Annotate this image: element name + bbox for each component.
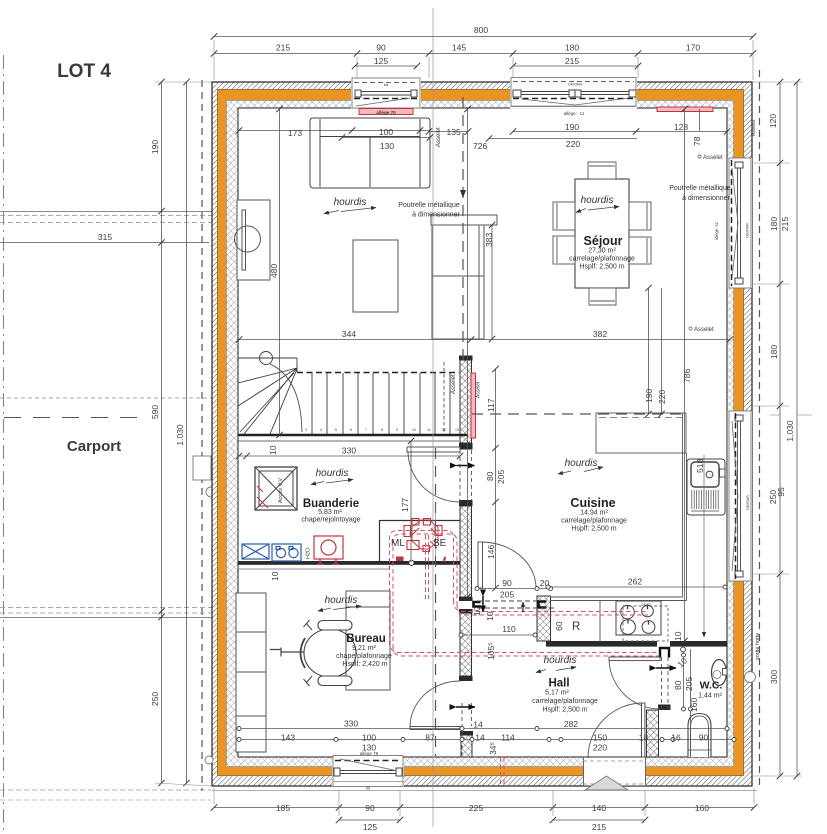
- svg-text:160: 160: [695, 803, 709, 813]
- svg-text:7: 7: [365, 428, 367, 432]
- svg-text:262: 262: [628, 577, 642, 587]
- svg-text:80: 80: [673, 680, 683, 690]
- svg-text:100: 100: [362, 733, 376, 743]
- svg-text:150: 150: [593, 733, 607, 743]
- svg-text:220: 220: [657, 390, 667, 404]
- svg-text:3: 3: [305, 428, 307, 432]
- svg-text:16: 16: [671, 733, 681, 743]
- svg-text:H2O: H2O: [306, 547, 312, 559]
- svg-text:34⁵: 34⁵: [488, 742, 498, 755]
- svg-text:à dimensionner: à dimensionner: [412, 212, 461, 219]
- svg-text:128: 128: [674, 122, 688, 132]
- svg-text:170: 170: [686, 43, 700, 53]
- svg-text:9: 9: [396, 428, 398, 432]
- svg-text:220: 220: [566, 139, 580, 149]
- svg-text:90: 90: [376, 43, 386, 53]
- svg-text:27,30 m²: 27,30 m²: [588, 248, 616, 255]
- svg-text:14,94 m²: 14,94 m²: [580, 510, 608, 517]
- svg-text:Asselet: Asselet: [751, 119, 757, 136]
- svg-text:carrelage/plafonnage: carrelage/plafonnage: [532, 698, 598, 705]
- svg-text:215: 215: [565, 56, 579, 66]
- svg-text:90: 90: [502, 578, 512, 588]
- svg-text:9,21 m²: 9,21 m²: [352, 645, 376, 652]
- svg-text:Carport: Carport: [67, 438, 121, 455]
- svg-text:160: 160: [689, 698, 699, 712]
- svg-text:Hsplf: 2,500 m: Hsplf: 2,500 m: [542, 707, 587, 714]
- svg-text:330: 330: [342, 446, 356, 456]
- svg-text:114: 114: [501, 733, 515, 743]
- svg-text:SE: SE: [433, 538, 447, 549]
- svg-text:hourdis: hourdis: [565, 458, 598, 469]
- svg-text:6: 6: [350, 428, 352, 432]
- svg-text:Séjour: Séjour: [584, 234, 623, 248]
- svg-text:518: 518: [695, 459, 705, 473]
- svg-text:120: 120: [768, 114, 778, 128]
- svg-text:315: 315: [98, 232, 112, 242]
- svg-text:143: 143: [281, 733, 295, 743]
- svg-text:800: 800: [474, 25, 488, 35]
- svg-text:06: 06: [366, 786, 371, 791]
- svg-text:180: 180: [769, 217, 779, 231]
- svg-text:480: 480: [269, 264, 279, 278]
- svg-text:90: 90: [699, 733, 709, 743]
- svg-text:Asselet: Asselet: [694, 327, 714, 333]
- svg-text:hourdis: hourdis: [325, 595, 358, 606]
- svg-text:13: 13: [455, 428, 459, 432]
- svg-text:Asselet: Asselet: [703, 155, 723, 161]
- svg-text:117: 117: [486, 398, 496, 412]
- svg-text:sortie hotte: sortie hotte: [755, 633, 761, 660]
- svg-text:hourdis: hourdis: [334, 197, 367, 208]
- svg-text:180: 180: [565, 43, 579, 53]
- svg-text:Hsplf: 2,500 m: Hsplf: 2,500 m: [571, 526, 616, 533]
- svg-text:Asselet: Asselet: [476, 381, 482, 398]
- svg-text:W.C.: W.C.: [700, 680, 723, 692]
- svg-text:OB/OkR: OB/OkR: [745, 495, 750, 510]
- svg-text:4: 4: [320, 428, 322, 432]
- svg-text:282: 282: [564, 719, 578, 729]
- svg-text:205: 205: [684, 677, 694, 691]
- svg-text:hourdis: hourdis: [581, 195, 614, 206]
- svg-text:250: 250: [150, 692, 160, 706]
- svg-text:215: 215: [780, 217, 790, 231]
- svg-text:Bureau: Bureau: [346, 633, 386, 645]
- svg-text:130: 130: [362, 743, 376, 753]
- svg-text:hourdis: hourdis: [316, 468, 349, 479]
- svg-text:125: 125: [363, 822, 377, 832]
- svg-text:60: 60: [554, 621, 564, 631]
- svg-text:105⁵: 105⁵: [486, 642, 496, 660]
- svg-text:1.030: 1.030: [175, 424, 185, 446]
- svg-text:220: 220: [593, 743, 607, 753]
- svg-text:10: 10: [412, 428, 416, 432]
- svg-text:5: 5: [335, 428, 337, 432]
- svg-text:125: 125: [374, 56, 388, 66]
- svg-text:80: 80: [485, 471, 495, 481]
- svg-text:5,17 m²: 5,17 m²: [545, 690, 569, 697]
- svg-text:5,83 m²: 5,83 m²: [318, 509, 342, 516]
- svg-text:allège 70: allège 70: [376, 110, 396, 115]
- svg-text:215: 215: [276, 43, 290, 53]
- svg-text:Hsplf: 2,420 m: Hsplf: 2,420 m: [342, 661, 387, 668]
- svg-text:1.030: 1.030: [785, 420, 795, 442]
- svg-text:130: 130: [380, 141, 394, 151]
- svg-text:344: 344: [342, 329, 356, 339]
- svg-text:8: 8: [381, 428, 383, 432]
- svg-text:145: 145: [452, 43, 466, 53]
- svg-text:177: 177: [400, 498, 410, 512]
- svg-text:carrelage/plafonnage: carrelage/plafonnage: [561, 518, 627, 525]
- svg-text:100: 100: [379, 127, 393, 137]
- svg-text:146: 146: [486, 545, 496, 559]
- svg-text:1,44 m²: 1,44 m²: [698, 693, 722, 700]
- svg-text:90: 90: [365, 803, 375, 813]
- svg-text:Accès V.V.: Accès V.V.: [278, 477, 284, 503]
- svg-text:300: 300: [769, 670, 779, 684]
- svg-text:190: 190: [565, 122, 579, 132]
- svg-text:hourdis: hourdis: [544, 655, 577, 666]
- svg-text:330: 330: [344, 719, 358, 729]
- svg-text:786: 786: [682, 369, 692, 383]
- svg-text:Poutrelle métallique: Poutrelle métallique: [669, 185, 731, 192]
- svg-text:oeoo: oeoo: [642, 602, 652, 607]
- svg-text:590: 590: [150, 405, 160, 419]
- svg-text:14: 14: [473, 720, 483, 730]
- svg-text:173: 173: [288, 128, 302, 138]
- svg-text:à dimensionner: à dimensionner: [682, 195, 731, 202]
- svg-text:190: 190: [150, 140, 160, 154]
- svg-text:ML: ML: [391, 538, 405, 549]
- svg-text:Hall: Hall: [548, 678, 569, 690]
- svg-text:78: 78: [692, 136, 702, 146]
- svg-text:10: 10: [673, 631, 683, 641]
- svg-text:chape/rejolntoyage: chape/rejolntoyage: [301, 517, 360, 524]
- svg-text:allège: -11: allège: -11: [564, 111, 585, 116]
- svg-text:190: 190: [644, 389, 654, 403]
- svg-text:carrelage/plafonnage: carrelage/plafonnage: [569, 256, 635, 263]
- svg-text:205: 205: [496, 470, 506, 484]
- svg-text:12: 12: [442, 428, 446, 432]
- svg-text:383: 383: [484, 233, 494, 247]
- svg-text:Ob/OkR: Ob/OkR: [568, 82, 583, 87]
- svg-text:Asselet: Asselet: [451, 374, 457, 394]
- svg-text:10: 10: [268, 445, 278, 455]
- svg-text:205: 205: [500, 590, 514, 600]
- svg-text:135 .: 135 .: [447, 127, 466, 137]
- svg-text:OB/OkR: OB/OkR: [745, 223, 750, 238]
- svg-text:allège -11: allège -11: [714, 221, 719, 240]
- svg-text:10: 10: [472, 606, 482, 616]
- svg-text:18: 18: [639, 733, 649, 743]
- svg-text:Cuisine: Cuisine: [570, 496, 615, 510]
- svg-text:10: 10: [485, 611, 495, 621]
- svg-text:382: 382: [593, 329, 607, 339]
- svg-text:185: 185: [276, 803, 290, 813]
- svg-text:LOT 4: LOT 4: [57, 61, 111, 82]
- svg-text:bâ: bâ: [384, 82, 389, 87]
- svg-text:215: 215: [592, 822, 606, 832]
- svg-text:14: 14: [475, 733, 485, 743]
- svg-text:225: 225: [469, 803, 483, 813]
- svg-text:11: 11: [427, 428, 431, 432]
- svg-text:87: 87: [425, 733, 435, 743]
- svg-text:chape/plafonnage: chape/plafonnage: [336, 653, 392, 660]
- svg-text:180: 180: [769, 345, 779, 359]
- svg-text:10: 10: [270, 571, 280, 581]
- svg-text:Hsplf: 2,500 m: Hsplf: 2,500 m: [579, 264, 624, 271]
- svg-text:140: 140: [592, 803, 606, 813]
- svg-text:95: 95: [776, 487, 786, 497]
- svg-text:Asselet: Asselet: [436, 127, 442, 147]
- svg-text:110: 110: [502, 624, 516, 634]
- svg-text:726: 726: [473, 141, 487, 151]
- svg-text:Poutrelle métallique: Poutrelle métallique: [398, 202, 460, 209]
- svg-text:R: R: [572, 621, 580, 633]
